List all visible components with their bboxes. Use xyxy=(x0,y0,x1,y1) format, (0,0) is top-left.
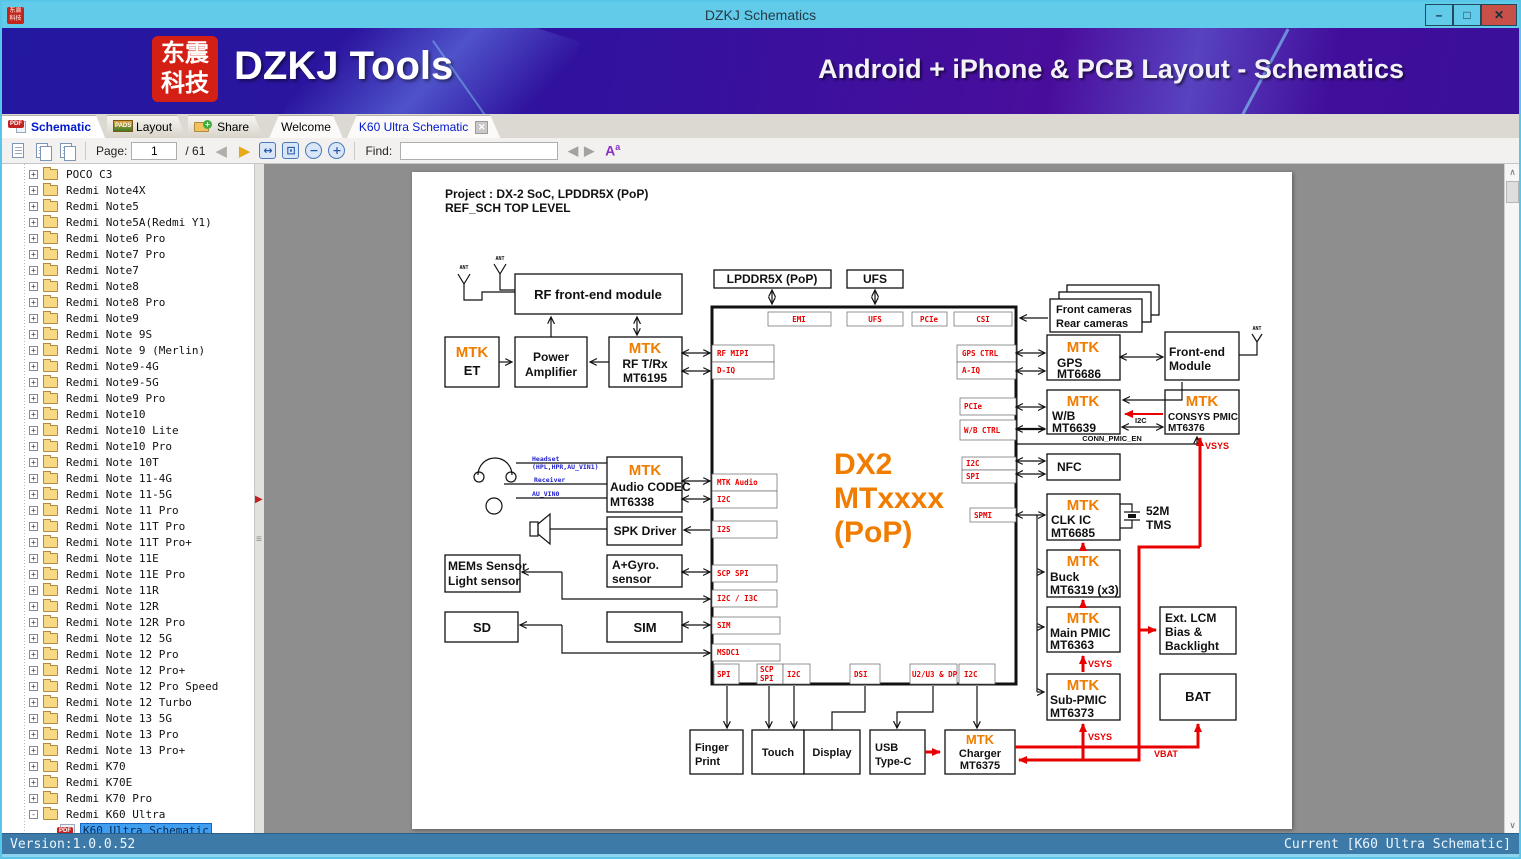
fit-width-icon[interactable]: ↔ xyxy=(259,142,276,159)
tree-item-label: Redmi Note 9S xyxy=(64,328,154,341)
svg-text:TMS: TMS xyxy=(1146,518,1171,532)
tree-item[interactable]: + PDF Redmi Note 11-5G xyxy=(2,486,237,502)
svg-text:SPK Driver: SPK Driver xyxy=(614,524,677,538)
folder-icon xyxy=(43,169,58,180)
svg-text:I2C: I2C xyxy=(964,670,978,679)
folder-icon xyxy=(43,473,58,484)
tree-item[interactable]: PDF K60 Ultra Schematic xyxy=(2,822,237,833)
tab-share[interactable]: + Share xyxy=(188,115,263,138)
tree-item-label: Redmi Note 13 5G xyxy=(64,712,174,725)
tree-item[interactable]: + PDF Redmi Note 11-4G xyxy=(2,470,237,486)
tree-item[interactable]: + PDF Redmi K70 xyxy=(2,758,237,774)
folder-icon xyxy=(43,345,58,356)
tree-item-label: Redmi Note 12 Pro xyxy=(64,648,181,661)
folder-icon xyxy=(43,233,58,244)
doc-scroll-down-icon[interactable]: ∨ xyxy=(1505,817,1519,833)
current-document-text: Current [K60 Ultra Schematic] xyxy=(1284,837,1511,852)
svg-text:I2C / I3C: I2C / I3C xyxy=(717,594,758,603)
tree-item[interactable]: + PDF Redmi Note9 Pro xyxy=(2,390,237,406)
folder-icon xyxy=(43,713,58,724)
svg-text:Module: Module xyxy=(1169,359,1211,373)
svg-text:52M: 52M xyxy=(1146,504,1169,518)
receiver-icon xyxy=(486,498,502,514)
net-i2c-label: I2C xyxy=(1135,416,1147,425)
tree-item[interactable]: + PDF Redmi Note 13 Pro xyxy=(2,726,237,742)
block-cameras: Front cameras Rear cameras xyxy=(1050,285,1159,332)
svg-text:DSI: DSI xyxy=(854,670,868,679)
folder-icon xyxy=(43,729,58,740)
tree-item-label: Redmi Note8 xyxy=(64,280,141,293)
folder-icon xyxy=(43,217,58,228)
folder-icon xyxy=(43,425,58,436)
svg-text:I2C: I2C xyxy=(966,459,980,468)
tree-item-label: Redmi Note 12 Pro+ xyxy=(64,664,187,677)
tree-toggle[interactable]: + xyxy=(29,778,38,787)
tree-item[interactable]: + PDF Redmi Note8 Pro xyxy=(2,294,237,310)
folder-icon xyxy=(43,553,58,564)
svg-text:Charger: Charger xyxy=(959,748,1002,760)
tree-item-label: Redmi K60 Ultra xyxy=(64,808,167,821)
schematic-canvas: Project : DX-2 SoC, LPDDR5X (PoP) REF_SC… xyxy=(412,172,1292,829)
tree-item-label: Redmi Note5A(Redmi Y1) xyxy=(64,216,214,229)
svg-text:MT6363: MT6363 xyxy=(1050,638,1094,652)
svg-text:SPI: SPI xyxy=(717,670,731,679)
tree-item[interactable]: + PDF Redmi Note 12R xyxy=(2,598,237,614)
next-page-icon[interactable]: ▶ xyxy=(239,142,251,160)
svg-text:I2C: I2C xyxy=(787,670,801,679)
svg-text:RF front-end module: RF front-end module xyxy=(534,287,662,302)
block-touch: Touch xyxy=(752,730,804,774)
tree-toggle[interactable]: + xyxy=(29,458,38,467)
folder-icon xyxy=(43,681,58,692)
svg-text:SD: SD xyxy=(473,620,491,635)
tree-item-label: Redmi Note10 xyxy=(64,408,147,421)
schematic-title: Project : DX-2 SoC, LPDDR5X (PoP) REF_SC… xyxy=(445,187,648,215)
headset-icon xyxy=(474,458,516,482)
doc-scrollbar-thumb[interactable] xyxy=(1506,181,1519,203)
svg-text:ANT: ANT xyxy=(459,265,468,271)
svg-text:MTK: MTK xyxy=(966,732,995,747)
block-rf-trx: MTK RF T/Rx MT6195 xyxy=(609,337,682,387)
splitter-collapse-icon[interactable]: ▶ xyxy=(255,494,263,505)
tree-item[interactable]: + PDF Redmi Note7 Pro xyxy=(2,246,237,262)
brand-logo: 东震科技 xyxy=(152,36,218,102)
tree-item-label: Redmi Note 11-5G xyxy=(64,488,174,501)
single-page-icon[interactable] xyxy=(10,142,28,160)
tree-toggle[interactable]: + xyxy=(29,442,38,451)
audio-signal-labels: Headset (HPL,HPR,AU_VIN1) Receiver AU_VI… xyxy=(504,455,607,529)
svg-text:RF T/Rx: RF T/Rx xyxy=(622,357,668,371)
pmic-wires xyxy=(1037,515,1044,692)
block-nfc: NFC xyxy=(1047,454,1120,480)
folder-icon xyxy=(43,521,58,532)
svg-text:MTK: MTK xyxy=(1186,393,1219,410)
multi-page-icon[interactable] xyxy=(58,142,76,160)
tree-item[interactable]: + PDF Redmi Note 12 5G xyxy=(2,630,237,646)
block-rf-front-end: RF front-end module xyxy=(515,274,682,314)
svg-text:NFC: NFC xyxy=(1057,460,1082,474)
block-ext-lcm: Ext. LCM Bias & Backlight xyxy=(1160,607,1236,654)
tree-item[interactable]: + PDF Redmi Note10 Lite xyxy=(2,422,237,438)
svg-text:(HPL,HPR,AU_VIN1): (HPL,HPR,AU_VIN1) xyxy=(532,463,599,471)
tree-toggle[interactable]: + xyxy=(29,474,38,483)
tree-item[interactable]: + PDF Redmi Note 12 Turbo xyxy=(2,694,237,710)
tree-toggle[interactable]: + xyxy=(29,314,38,323)
svg-text:MTK: MTK xyxy=(1067,610,1100,627)
tree-item[interactable]: + PDF Redmi Note5A(Redmi Y1) xyxy=(2,214,237,230)
pdf-icon: PDF xyxy=(8,120,26,134)
svg-text:PCIe: PCIe xyxy=(964,402,983,411)
svg-text:Finger: Finger xyxy=(695,742,729,754)
block-usb-type-c: USB Type-C xyxy=(870,730,925,774)
tree-toggle[interactable]: + xyxy=(29,394,38,403)
tree-item[interactable]: + PDF Redmi Note4X xyxy=(2,182,237,198)
tree-item[interactable]: + PDF Redmi K70 Pro xyxy=(2,790,237,806)
tree-toggle[interactable]: + xyxy=(29,714,38,723)
brand-title: DZKJ Tools xyxy=(234,44,453,89)
block-et: MTK ET xyxy=(445,337,499,387)
tree-item-label: Redmi Note9 xyxy=(64,312,141,325)
tree-item[interactable]: + PDF Redmi Note 12 Pro xyxy=(2,646,237,662)
tree-item[interactable]: + PDF Redmi Note 11T Pro+ xyxy=(2,534,237,550)
svg-text:Front cameras: Front cameras xyxy=(1056,304,1132,316)
close-tab-icon[interactable]: ✕ xyxy=(475,121,488,134)
minimize-button[interactable]: – xyxy=(1425,4,1453,26)
tree-item[interactable]: + PDF Redmi Note 12 Pro+ xyxy=(2,662,237,678)
tree-toggle[interactable]: + xyxy=(29,282,38,291)
tree-item[interactable]: + PDF Redmi Note9 xyxy=(2,310,237,326)
tree-toggle[interactable]: + xyxy=(29,762,38,771)
svg-text:BAT: BAT xyxy=(1185,689,1211,704)
folder-icon xyxy=(43,761,58,772)
svg-text:Bias &: Bias & xyxy=(1165,625,1203,639)
block-accel-gyro: A+Gyro. sensor xyxy=(607,555,682,587)
tree-item[interactable]: + PDF POCO C3 xyxy=(2,166,237,182)
tree-toggle[interactable]: + xyxy=(29,250,38,259)
svg-text:Light sensor: Light sensor xyxy=(448,574,520,588)
folder-icon xyxy=(43,201,58,212)
svg-text:SCP SPI: SCP SPI xyxy=(717,569,749,578)
tree-toggle[interactable]: + xyxy=(29,490,38,499)
svg-text:SPI: SPI xyxy=(966,472,980,481)
svg-text:MT6195: MT6195 xyxy=(623,371,667,385)
tree-item[interactable]: + PDF Redmi Note 9S xyxy=(2,326,237,342)
svg-text:MTK: MTK xyxy=(1067,497,1100,514)
svg-text:MEMs Sensor: MEMs Sensor xyxy=(448,559,527,573)
svg-text:MT6375: MT6375 xyxy=(960,760,1000,772)
svg-text:VSYS: VSYS xyxy=(1205,441,1229,451)
svg-text:SCP: SCP xyxy=(760,665,774,674)
tree-item-label: Redmi Note8 Pro xyxy=(64,296,167,309)
tree-item-label: Redmi Note10 Pro xyxy=(64,440,174,453)
tree-item[interactable]: + PDF Redmi Note10 Pro xyxy=(2,438,237,454)
tree-item-label: Redmi Note10 Lite xyxy=(64,424,181,437)
tree-item[interactable]: + PDF Redmi Note 12 Pro Speed xyxy=(2,678,237,694)
tree-toggle[interactable]: + xyxy=(29,666,38,675)
tree-item[interactable]: + PDF Redmi Note8 xyxy=(2,278,237,294)
tree-toggle[interactable]: + xyxy=(29,586,38,595)
svg-text:MTK: MTK xyxy=(629,340,662,357)
folder-icon xyxy=(43,313,58,324)
maximize-button[interactable]: □ xyxy=(1453,4,1481,26)
svg-text:MTK Audio: MTK Audio xyxy=(717,478,758,487)
tree-toggle[interactable]: + xyxy=(29,730,38,739)
tree-item[interactable]: + PDF Redmi Note 11 Pro xyxy=(2,502,237,518)
folder-icon xyxy=(43,361,58,372)
tree-toggle[interactable]: + xyxy=(29,538,38,547)
svg-text:sensor: sensor xyxy=(612,572,652,586)
tree-item[interactable]: + PDF Redmi Note 12R Pro xyxy=(2,614,237,630)
svg-text:UFS: UFS xyxy=(863,272,887,286)
svg-text:MT6373: MT6373 xyxy=(1050,706,1094,720)
tree-toggle[interactable]: + xyxy=(29,650,38,659)
svg-text:MTK: MTK xyxy=(1067,553,1100,570)
folder-icon xyxy=(43,617,58,628)
tree-item[interactable]: + PDF Redmi Note 11R xyxy=(2,582,237,598)
tree-item-label: Redmi Note 11R xyxy=(64,584,161,597)
svg-text:Power: Power xyxy=(533,350,569,364)
folder-icon xyxy=(43,441,58,452)
version-text: Version:1.0.0.52 xyxy=(10,837,135,852)
tree-item-label: Redmi Note 11E Pro xyxy=(64,568,187,581)
svg-text:AU_VIN0: AU_VIN0 xyxy=(532,490,559,498)
svg-text:MT6376: MT6376 xyxy=(1168,423,1205,434)
tree-toggle[interactable]: + xyxy=(29,410,38,419)
prev-page-icon[interactable]: ◀ xyxy=(215,142,227,160)
page-label: Page: xyxy=(96,144,127,158)
svg-text:I2C: I2C xyxy=(717,495,731,504)
bottom-wires xyxy=(727,686,977,730)
tree-item[interactable]: + PDF Redmi Note9-4G xyxy=(2,358,237,374)
svg-text:Print: Print xyxy=(695,756,720,768)
tree-toggle[interactable]: + xyxy=(29,602,38,611)
tree-item-label: Redmi Note 12R Pro xyxy=(64,616,187,629)
tree-item-label: Redmi K70E xyxy=(64,776,134,789)
tree-toggle[interactable]: + xyxy=(29,346,38,355)
document-view: Project : DX-2 SoC, LPDDR5X (PoP) REF_SC… xyxy=(264,164,1519,833)
tree-item[interactable]: + PDF Redmi Note6 Pro xyxy=(2,230,237,246)
block-mems-sensor: MEMs Sensor Light sensor xyxy=(445,555,527,592)
block-charger: MTK Charger MT6375 xyxy=(945,730,1015,774)
app-window: 东震科技 DZKJ Schematics – □ ✕ 东震科技 DZKJ Too… xyxy=(0,0,1521,859)
tree-item[interactable]: + PDF Redmi Note 11T Pro xyxy=(2,518,237,534)
doc-tab-k60-ultra-schematic[interactable]: K60 Ultra Schematic ✕ xyxy=(347,115,500,138)
find-input[interactable] xyxy=(400,142,558,160)
tree-item-label: Redmi Note 11-4G xyxy=(64,472,174,485)
svg-text:Headset: Headset xyxy=(532,455,559,463)
tree-toggle[interactable]: + xyxy=(29,746,38,755)
tree-item-label: K60 Ultra Schematic xyxy=(81,824,211,834)
tree-item-label: Redmi Note 12R xyxy=(64,600,161,613)
facing-pages-icon[interactable] xyxy=(34,142,52,160)
folder-icon xyxy=(43,585,58,596)
tree-item-label: Redmi Note9-5G xyxy=(64,376,161,389)
folder-icon xyxy=(43,697,58,708)
block-gps: MTK GPS MT6686 xyxy=(1047,335,1120,381)
folder-icon xyxy=(43,393,58,404)
tree-item-label: Redmi Note5 xyxy=(64,200,141,213)
tree-toggle[interactable]: + xyxy=(29,266,38,275)
tree-toggle[interactable]: + xyxy=(29,426,38,435)
tree-item[interactable]: + PDF Redmi Note 11E Pro xyxy=(2,566,237,582)
block-display: Display xyxy=(804,730,860,774)
svg-text:PCIe: PCIe xyxy=(920,315,939,324)
tree-toggle[interactable]: + xyxy=(29,698,38,707)
window-title: DZKJ Schematics xyxy=(2,7,1519,23)
page-total: / 61 xyxy=(185,144,205,158)
svg-text:SPMI: SPMI xyxy=(974,511,992,520)
svg-text:SIM: SIM xyxy=(633,620,656,635)
find-previous-icon[interactable]: ◀ xyxy=(568,143,578,159)
tree-toggle[interactable]: + xyxy=(29,202,38,211)
block-power-amplifier: Power Amplifier xyxy=(515,337,587,387)
tree-toggle[interactable]: + xyxy=(29,682,38,691)
tree-item-label: Redmi Note 11T Pro+ xyxy=(64,536,194,549)
svg-text:MT6338: MT6338 xyxy=(610,495,654,509)
svg-text:GPS CTRL: GPS CTRL xyxy=(962,349,999,358)
tree-toggle[interactable]: + xyxy=(29,170,38,179)
folder-icon xyxy=(43,665,58,676)
doc-scroll-up-icon[interactable]: ∧ xyxy=(1505,164,1519,180)
block-sub-pmic: MTK Sub-PMIC MT6373 xyxy=(1047,674,1120,720)
folder-icon xyxy=(43,489,58,500)
tree-toggle[interactable]: + xyxy=(29,330,38,339)
svg-text:I2S: I2S xyxy=(717,525,731,534)
zoom-out-icon[interactable]: − xyxy=(305,142,322,159)
find-label: Find: xyxy=(365,144,392,158)
block-sd: SD xyxy=(445,612,518,642)
svg-text:MTK: MTK xyxy=(456,344,489,361)
tree-item-label: Redmi Note9-4G xyxy=(64,360,161,373)
svg-text:MT6319 (x3): MT6319 (x3) xyxy=(1050,583,1119,597)
speaker-icon xyxy=(530,514,550,544)
folder-icon xyxy=(43,777,58,788)
block-buck: MTK Buck MT6319 (x3) xyxy=(1047,550,1120,597)
tab-bar: PDF Schematic PADS Layout + Share Welcom… xyxy=(2,114,1519,138)
svg-text:A-IQ: A-IQ xyxy=(962,366,981,375)
svg-text:USB: USB xyxy=(875,742,898,754)
tree-toggle[interactable]: + xyxy=(29,794,38,803)
svg-text:Backlight: Backlight xyxy=(1165,639,1219,653)
pane-splitter[interactable]: ▶ ≡ xyxy=(254,164,264,833)
tree-toggle[interactable]: + xyxy=(29,234,38,243)
folder-icon xyxy=(43,633,58,644)
doc-tab-welcome[interactable]: Welcome xyxy=(269,115,343,138)
folder-icon xyxy=(43,185,58,196)
svg-text:A+Gyro.: A+Gyro. xyxy=(612,558,659,572)
svg-text:MT6685: MT6685 xyxy=(1051,526,1095,540)
svg-text:CONN_PMIC_EN: CONN_PMIC_EN xyxy=(1082,434,1142,443)
svg-text:Type-C: Type-C xyxy=(875,756,912,768)
tree-toggle[interactable]: + xyxy=(29,186,38,195)
folder-icon xyxy=(43,809,58,820)
svg-text:DX2: DX2 xyxy=(834,448,892,481)
svg-text:Sub-PMIC: Sub-PMIC xyxy=(1050,693,1107,707)
folder-icon xyxy=(43,649,58,660)
tree-item-label: Redmi Note7 xyxy=(64,264,141,277)
font-size-icon[interactable]: Aa xyxy=(605,142,620,159)
antenna-icon: ANT ANT xyxy=(458,256,515,300)
tree-item-label: Redmi Note 11 Pro xyxy=(64,504,181,517)
status-bar: Version:1.0.0.52 Current [K60 Ultra Sche… xyxy=(2,833,1519,857)
svg-text:REF_SCH TOP LEVEL: REF_SCH TOP LEVEL xyxy=(445,201,571,215)
document-scrollbar[interactable]: ∧ ∨ xyxy=(1504,164,1519,833)
tree-item[interactable]: + PDF Redmi Note10 xyxy=(2,406,237,422)
zoom-in-icon[interactable]: + xyxy=(328,142,345,159)
tree-toggle[interactable]: + xyxy=(29,298,38,307)
tree-item[interactable]: + PDF Redmi Note 11E xyxy=(2,550,237,566)
tree-toggle[interactable]: + xyxy=(29,522,38,531)
tab-schematic[interactable]: PDF Schematic xyxy=(2,115,105,138)
svg-text:Audio CODEC: Audio CODEC xyxy=(610,480,691,494)
tree-toggle[interactable]: + xyxy=(29,378,38,387)
tree-toggle[interactable]: + xyxy=(29,218,38,227)
tree-item[interactable]: + PDF Redmi Note 10T xyxy=(2,454,237,470)
tree-item[interactable]: + PDF Redmi Note9-5G xyxy=(2,374,237,390)
folder-icon xyxy=(43,505,58,516)
block-spk-driver: SPK Driver xyxy=(607,517,682,545)
folder-icon xyxy=(43,537,58,548)
tree-item[interactable]: + PDF Redmi Note7 xyxy=(2,262,237,278)
svg-text:VSYS: VSYS xyxy=(1088,659,1112,669)
tree-toggle[interactable]: + xyxy=(29,618,38,627)
tree-item[interactable]: + PDF Redmi Note 13 5G xyxy=(2,710,237,726)
tree-toggle[interactable]: + xyxy=(29,362,38,371)
tree-item[interactable]: + PDF Redmi Note5 xyxy=(2,198,237,214)
svg-text:MSDC1: MSDC1 xyxy=(717,648,740,657)
svg-text:CONSYS PMIC: CONSYS PMIC xyxy=(1168,412,1238,423)
tree-toggle[interactable]: + xyxy=(29,506,38,515)
svg-text:MT6686: MT6686 xyxy=(1057,367,1101,381)
model-tree: + PDF POCO C3 + PDF Redmi Note4X + PDF R… xyxy=(2,166,237,833)
block-soc-dx2: DX2 MTxxxx (PoP) EMI UFS PCIe CSI RF MIP… xyxy=(712,307,1016,684)
page-number-input[interactable] xyxy=(131,142,177,160)
antenna-icon-right: ANT xyxy=(1239,326,1262,355)
block-consys-pmic: MTK CONSYS PMIC MT6376 xyxy=(1165,390,1239,434)
tree-toggle[interactable]: + xyxy=(29,634,38,643)
tab-layout[interactable]: PADS Layout xyxy=(107,115,186,138)
svg-text:CSI: CSI xyxy=(976,315,990,324)
tree-toggle[interactable]: + xyxy=(29,570,38,579)
tree-item[interactable]: - PDF Redmi K60 Ultra xyxy=(2,806,237,822)
splitter-grip: ≡ xyxy=(256,534,262,545)
tree-item[interactable]: + PDF Redmi K70E xyxy=(2,774,237,790)
tree-item-label: Redmi Note 12 Turbo xyxy=(64,696,194,709)
net-conn-pmic-en: CONN_PMIC_EN xyxy=(1016,434,1197,444)
folder-icon xyxy=(43,409,58,420)
find-next-icon[interactable]: ▶ xyxy=(584,143,594,159)
svg-text:ANT: ANT xyxy=(1252,326,1261,332)
block-sim: SIM xyxy=(607,612,682,642)
tree-item[interactable]: + PDF Redmi Note 9 (Merlin) xyxy=(2,342,237,358)
tree-item-label: Redmi Note7 Pro xyxy=(64,248,167,261)
tree-toggle[interactable]: - xyxy=(29,810,38,819)
share-folder-icon: + xyxy=(194,120,212,134)
tree-item-label: Redmi Note 13 Pro+ xyxy=(64,744,187,757)
folder-icon xyxy=(43,601,58,612)
title-bar: 东震科技 DZKJ Schematics – □ ✕ xyxy=(2,2,1519,28)
banner: 东震科技 DZKJ Tools Android + iPhone & PCB L… xyxy=(2,28,1519,114)
tree-toggle[interactable]: + xyxy=(29,554,38,563)
close-button[interactable]: ✕ xyxy=(1481,4,1517,26)
tree-item-label: POCO C3 xyxy=(64,168,114,181)
folder-icon xyxy=(43,569,58,580)
fit-page-icon[interactable]: ⊡ xyxy=(282,142,299,159)
tree-item[interactable]: + PDF Redmi Note 13 Pro+ xyxy=(2,742,237,758)
svg-text:MTK: MTK xyxy=(1067,677,1100,694)
folder-icon xyxy=(43,249,58,260)
svg-text:SIM: SIM xyxy=(717,621,731,630)
